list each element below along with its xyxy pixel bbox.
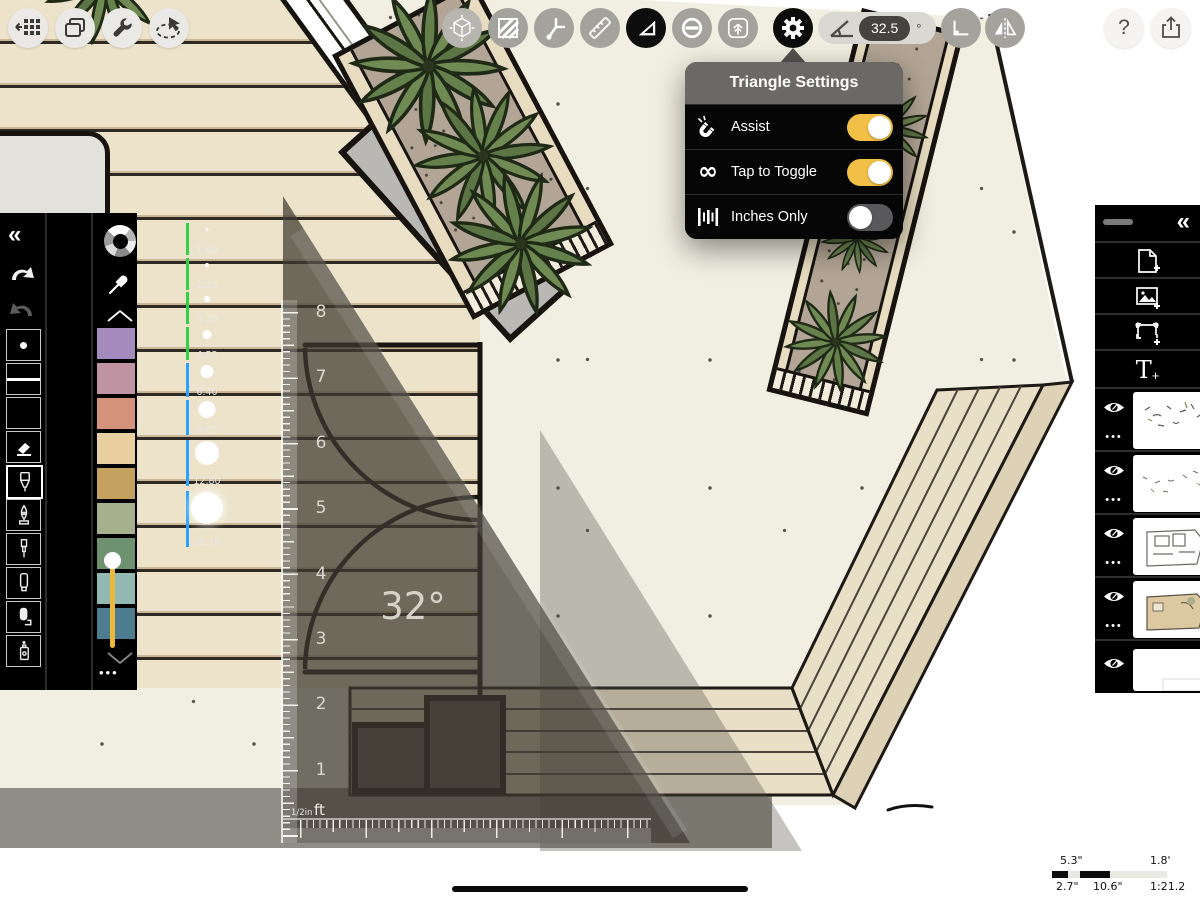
eraser-tool[interactable] (6, 431, 41, 463)
ruler-number: 4 (306, 564, 336, 584)
infinity-icon: ∞ (685, 162, 731, 181)
degree-unit: ° (916, 21, 921, 36)
layer-row[interactable]: ••• (1095, 513, 1200, 576)
brush-size-option[interactable]: 18.10 (184, 490, 230, 548)
size-slider[interactable] (110, 560, 115, 648)
layer-row[interactable]: ••• (1095, 387, 1200, 450)
home-indicator[interactable] (452, 886, 748, 892)
collapse-layers-button[interactable]: « (1177, 208, 1190, 236)
ruler-scale-label: 1/2in (291, 808, 312, 818)
inch-marks-icon (685, 207, 731, 227)
brush-size-option[interactable]: 12.80 (184, 439, 230, 487)
flip-mirror-button[interactable] (985, 8, 1025, 48)
redo-button[interactable] (7, 297, 37, 323)
layer-thumbnail[interactable] (1133, 649, 1200, 691)
share-button[interactable] (1151, 8, 1191, 48)
layer-visibility-toggle[interactable] (1099, 393, 1129, 421)
layer-options-button[interactable]: ••• (1099, 423, 1129, 451)
layer-visibility-toggle[interactable] (1099, 649, 1129, 677)
layer-visibility-toggle[interactable] (1099, 582, 1129, 610)
layer-options-button[interactable]: ••• (1099, 549, 1129, 577)
scale-bottom-left: 2.7" (1056, 880, 1079, 893)
ruler-number: 1 (306, 760, 336, 780)
tweaks-button[interactable] (102, 8, 142, 48)
brush-size-option[interactable]: 4.53 (184, 326, 230, 361)
triangle-shape (0, 0, 1200, 900)
roller-tool[interactable] (6, 601, 41, 633)
angle-display[interactable]: 32.5 ° (818, 12, 936, 44)
ink-pen-tool[interactable] (6, 499, 41, 531)
tap-to-toggle-toggle[interactable] (847, 159, 893, 186)
tap-to-toggle-label: Tap to Toggle (731, 164, 847, 180)
ruler-number: 3 (306, 629, 336, 649)
ellipse-tool[interactable] (672, 8, 712, 48)
scale-bar-segment (1052, 871, 1068, 878)
scale-bar-segment (1068, 871, 1080, 878)
angle-value-field[interactable]: 32.5 (859, 16, 910, 41)
tool-panel: « (0, 213, 137, 690)
inches-only-row: Inches Only (685, 194, 903, 239)
ruler-number: 6 (306, 433, 336, 453)
scale-bottom-mid: 10.6" (1093, 880, 1123, 893)
blank-tool[interactable] (6, 397, 41, 429)
undo-button[interactable] (7, 261, 37, 287)
triangle-settings-button[interactable] (773, 8, 813, 48)
layer-row[interactable] (1095, 639, 1200, 695)
inches-only-label: Inches Only (731, 209, 847, 225)
layer-thumbnail[interactable] (1133, 392, 1200, 449)
scale-top-right: 1.8' (1150, 854, 1171, 867)
layer-thumbnail[interactable] (1133, 455, 1200, 512)
magnet-icon (685, 115, 731, 139)
select-lasso-button[interactable] (149, 8, 189, 48)
more-options-button[interactable]: ••• (99, 665, 119, 680)
assist-toggle[interactable] (847, 114, 893, 141)
add-page-button[interactable] (1095, 241, 1200, 279)
layers-panel: « T + ••• (1095, 205, 1200, 693)
fillet-tool[interactable] (534, 8, 574, 48)
app-screen: 8 7 6 5 4 3 2 1 1/2in ft 32° « (0, 0, 1200, 900)
spray-tool[interactable] (6, 635, 41, 667)
layer-thumbnail[interactable] (1133, 581, 1200, 638)
panel-drag-handle[interactable] (1103, 219, 1133, 225)
triangle-angle-label: 32° (368, 585, 458, 628)
layer-options-button[interactable]: ••• (1099, 612, 1129, 640)
collapse-panel-button[interactable]: « (8, 221, 21, 249)
scale-top-left: 5.3" (1060, 854, 1083, 867)
snap-corner-button[interactable] (941, 8, 981, 48)
marker-tool[interactable] (6, 567, 41, 599)
assist-row: Assist (685, 104, 903, 149)
layer-row[interactable]: ••• (1095, 450, 1200, 513)
layer-thumbnail[interactable] (1133, 518, 1200, 575)
projects-button[interactable] (55, 8, 95, 48)
ruler-number: 7 (306, 367, 336, 387)
dot-tool[interactable] (6, 329, 41, 361)
fineliner-pen-tool[interactable] (6, 465, 43, 499)
ruler-number: 2 (306, 694, 336, 714)
brush-size-option[interactable]: 1.60 (184, 222, 230, 256)
add-image-button[interactable] (1095, 277, 1200, 315)
scale-ratio: 1:21.2 (1150, 880, 1185, 893)
assist-label: Assist (731, 119, 847, 135)
size-slider-thumb[interactable] (104, 552, 121, 569)
triangle-tool-active[interactable] (626, 8, 666, 48)
triangle-settings-popup: Triangle Settings Assist ∞ Tap to Toggle (685, 62, 903, 239)
brush-size-option[interactable]: 3.20 (184, 291, 230, 325)
transform-3d-tool[interactable] (442, 8, 482, 48)
add-frame-button[interactable] (1095, 313, 1200, 351)
tap-to-toggle-row: ∞ Tap to Toggle (685, 149, 903, 194)
line-tool[interactable] (6, 363, 41, 395)
ruler-number: 8 (306, 302, 336, 322)
import-image-tool[interactable] (718, 8, 758, 48)
layer-visibility-toggle[interactable] (1099, 519, 1129, 547)
layer-row[interactable]: ••• (1095, 576, 1200, 639)
help-button[interactable]: ? (1104, 8, 1144, 48)
brush-size-option[interactable]: 2.26 (184, 257, 230, 291)
add-text-button[interactable]: T + (1095, 349, 1200, 389)
popup-title: Triangle Settings (685, 62, 903, 104)
scale-bar-segment (1080, 871, 1110, 878)
brush-size-option[interactable]: 6.40 (184, 362, 230, 398)
triangle-ruler[interactable]: 8 7 6 5 4 3 2 1 1/2in ft 32° (0, 0, 1200, 900)
brush-size-option[interactable]: 9.05 (184, 399, 230, 436)
layer-visibility-toggle[interactable] (1099, 456, 1129, 484)
fill-tool[interactable] (488, 8, 528, 48)
gallery-button[interactable] (8, 8, 48, 48)
inches-only-toggle[interactable] (847, 204, 893, 231)
layer-options-button[interactable]: ••• (1099, 486, 1129, 514)
scale-bar-segment (1110, 871, 1167, 878)
technical-pen-tool[interactable] (6, 533, 41, 565)
ruler-unit-label: ft (314, 801, 325, 819)
ruler-tool[interactable] (580, 8, 620, 48)
ruler-number: 5 (306, 498, 336, 518)
scale-widget: 5.3" 1.8' 2.7" 10.6" 1:21.2 (1045, 852, 1195, 892)
